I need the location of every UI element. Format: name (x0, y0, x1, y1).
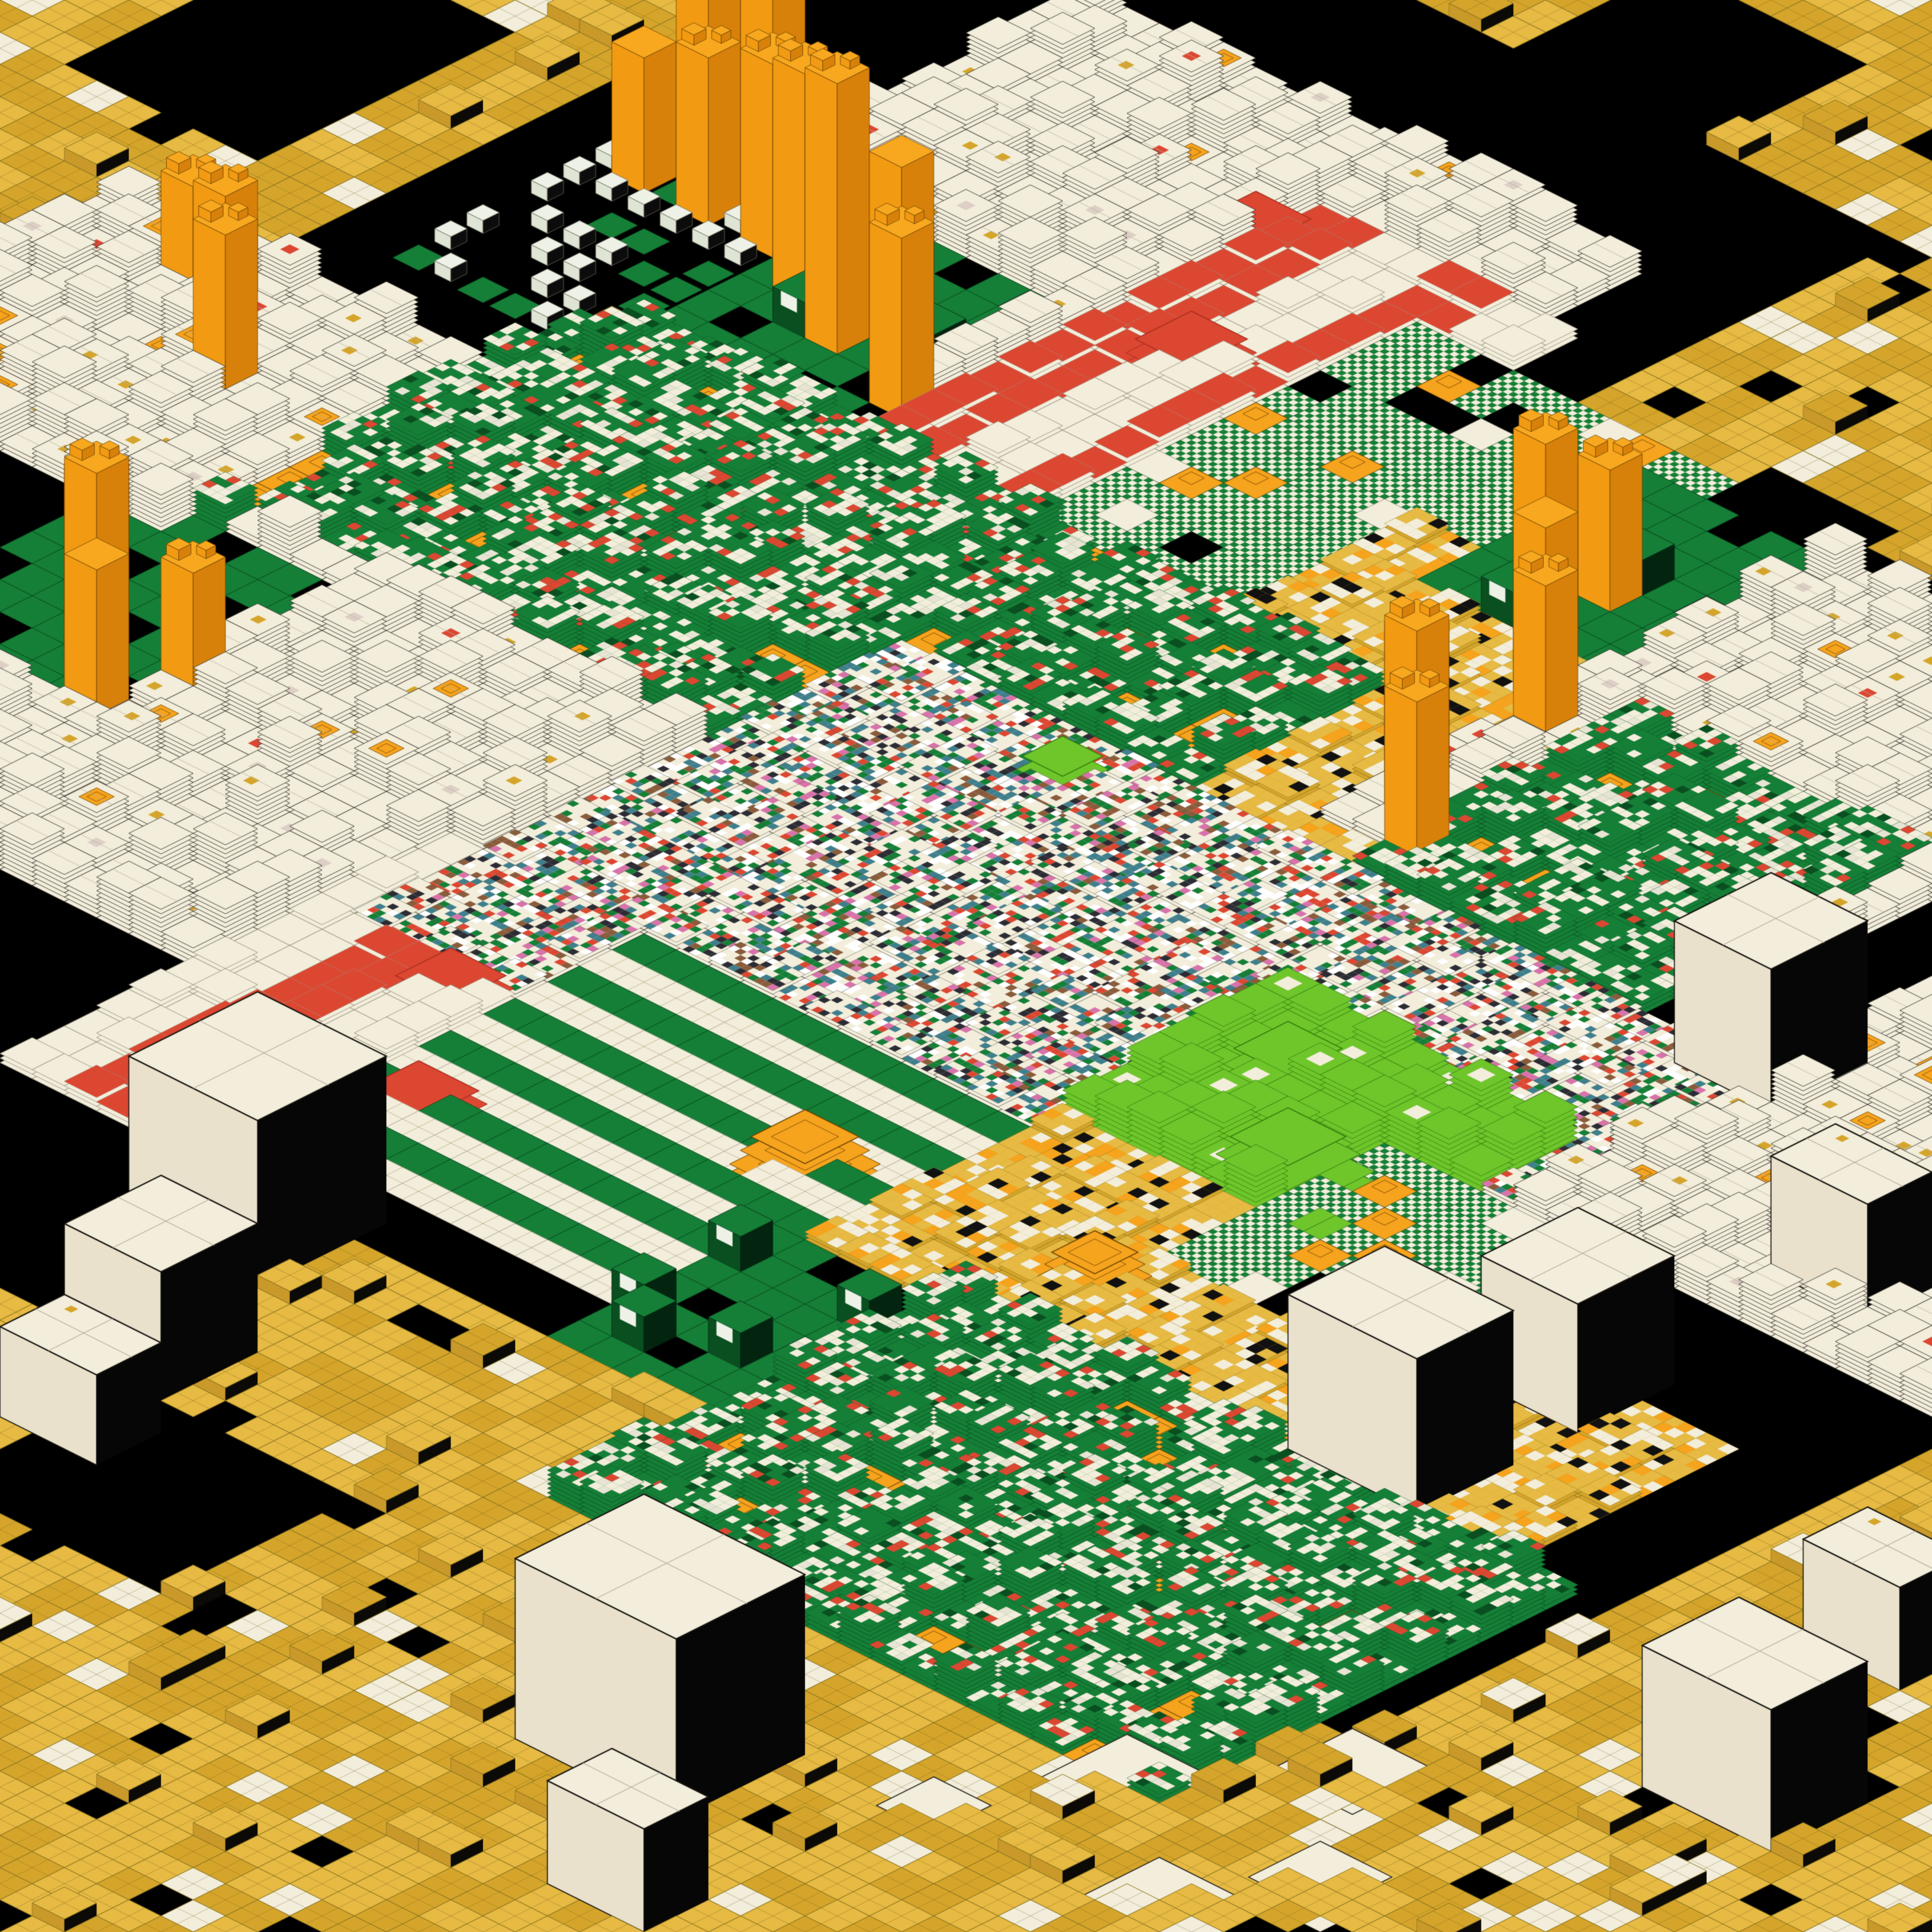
isometric-artwork-canvas (0, 0, 1932, 1932)
artwork-root (0, 0, 1932, 1932)
